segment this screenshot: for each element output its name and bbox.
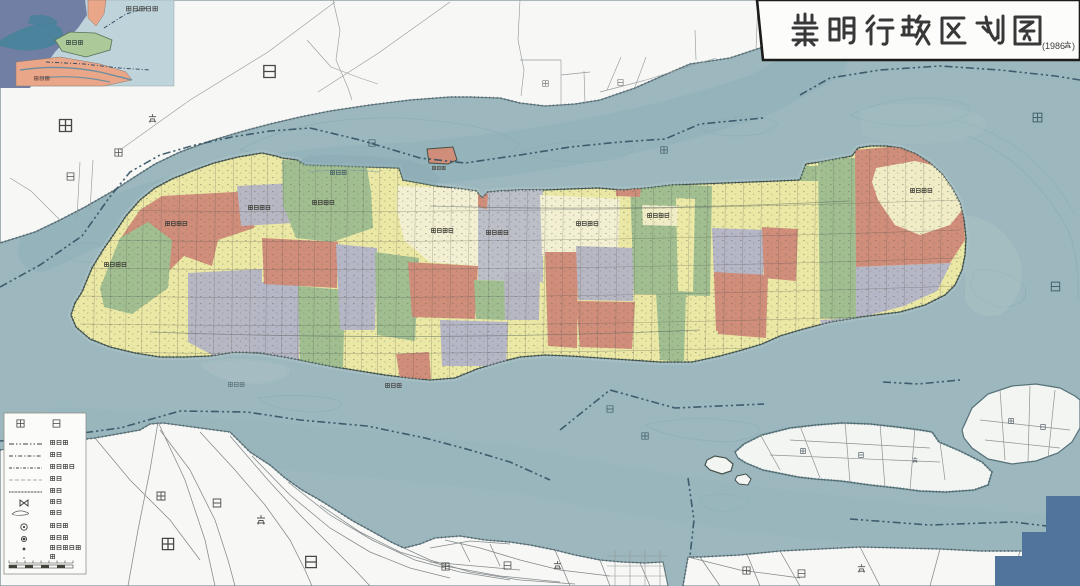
svg-text:(1986: (1986 (1042, 41, 1065, 51)
svg-text:): ) (1072, 41, 1075, 51)
